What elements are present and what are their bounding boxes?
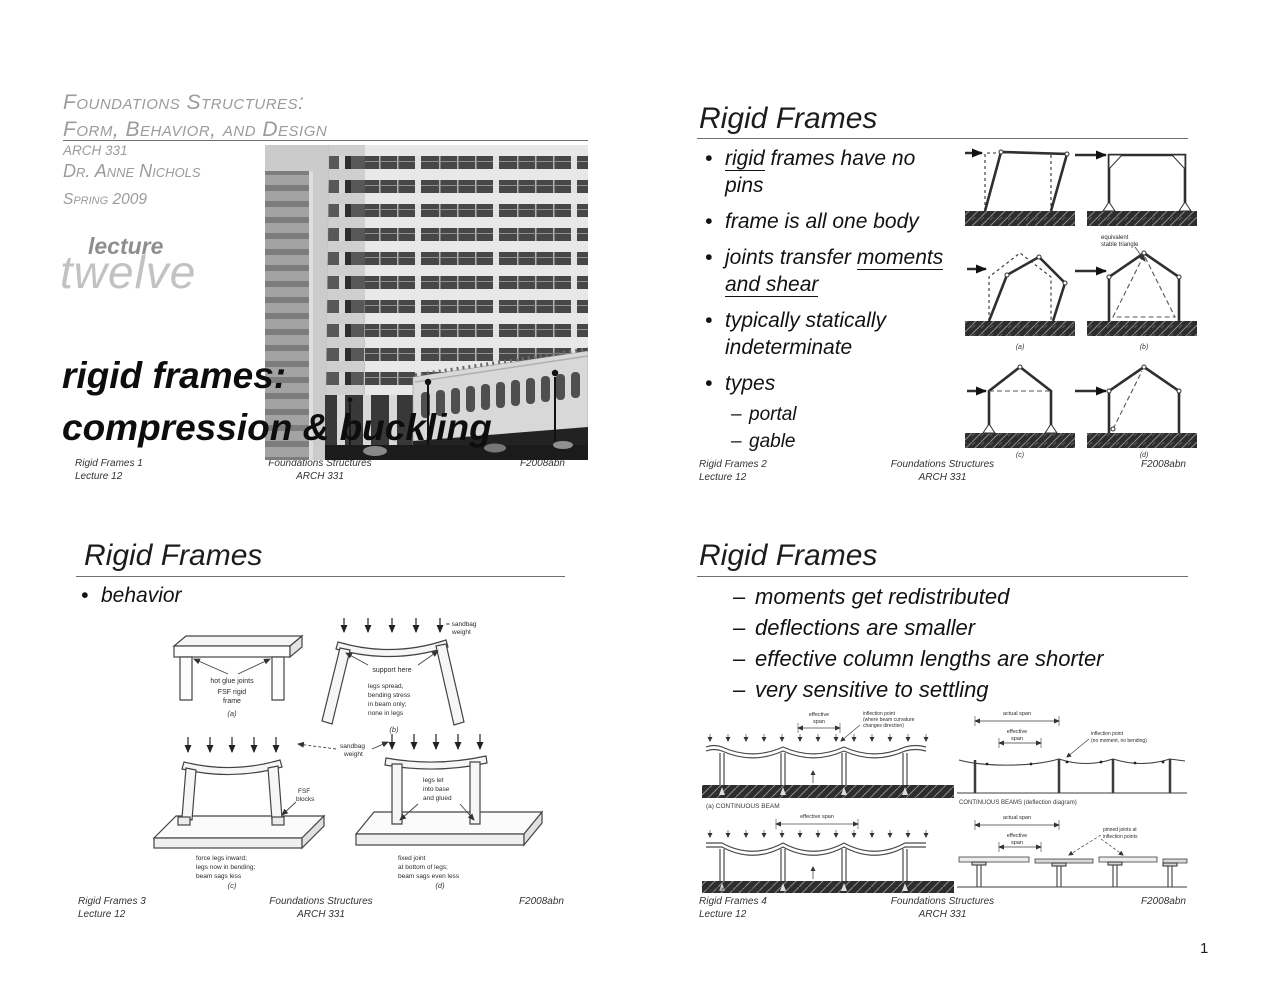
caption-line: beam sags less	[196, 873, 242, 880]
sandbag-label-line2: weight	[343, 751, 363, 758]
effective-span-label2: span	[1011, 840, 1023, 846]
slide-title: Rigid Frames	[699, 102, 877, 136]
diagram-label-b: (b)	[1140, 344, 1149, 351]
dash-bullet-item: – deflections are smaller	[733, 612, 1104, 643]
dash-marker: –	[731, 428, 749, 455]
continuous-beam-caption: (a) CONTINUOUS BEAM	[706, 803, 780, 810]
bullet-marker: •	[705, 244, 725, 298]
course-title: Foundations Structures: Form, Behavior, …	[63, 89, 327, 143]
footer-right: F2008abn	[435, 457, 565, 483]
footer-left: Rigid Frames 1 Lecture 12	[75, 457, 205, 483]
slide-1-title-slide: Foundations Structures: Form, Behavior, …	[60, 85, 590, 485]
continuous-beams-deflection-sketch	[957, 716, 1187, 793]
note-line: legs spread,	[368, 683, 404, 690]
sub-bullet-text: gable	[749, 428, 796, 455]
lecture-title-line1: rigid frames:	[62, 355, 286, 397]
portal-frame-rigid-sketch	[1075, 155, 1197, 226]
inflection-note-line: (no moment, no bending)	[1091, 738, 1147, 744]
effective-span-label: effective span	[800, 814, 834, 820]
footer-center: Foundations Structures ARCH 331	[829, 458, 1056, 484]
inflection-note-line: inflection point	[1091, 731, 1124, 737]
bullet-item: • typically statically indeterminate	[705, 307, 957, 361]
footer-center: Foundations Structures ARCH 331	[208, 895, 434, 921]
beam-frames-diagram: effective span inflection point (where b…	[700, 707, 958, 893]
note-line: in beam only;	[368, 701, 407, 708]
dash-bullet-item: – moments get redistributed	[733, 581, 1104, 612]
bullet-marker: •	[705, 307, 725, 361]
actual-span-label: actual span	[1003, 815, 1031, 821]
footer-right: F2008abn	[1056, 895, 1186, 921]
frame-types-diagram: equivalent stable triangle (a) (b)	[963, 145, 1200, 459]
bullet-item: • joints transfer moments and shear	[705, 244, 957, 298]
bullet-text: frame is all one body	[725, 208, 919, 235]
dash-marker: –	[733, 612, 755, 643]
term: Spring 2009	[63, 191, 147, 209]
simple-beam-frame-sketch	[702, 819, 954, 893]
deflection-gerber-diagram: actual span effective span inflection po…	[955, 707, 1189, 893]
footer-right: F2008abn	[434, 895, 564, 921]
bullet-marker: •	[705, 208, 725, 235]
dash-marker: –	[731, 401, 749, 428]
footer-center: Foundations Structures ARCH 331	[829, 895, 1056, 921]
bullet-text: behavior	[101, 584, 182, 608]
bullet-text: types	[725, 370, 775, 397]
frame-name-line2: frame	[223, 698, 241, 705]
dash-bullet-text: very sensitive to settling	[755, 674, 989, 705]
caption-line: force legs inward;	[196, 855, 247, 862]
support-here-note: support here	[372, 667, 411, 674]
slide-footer: Rigid Frames 2 Lecture 12 Foundations St…	[699, 458, 1186, 484]
bullet-marker: •	[705, 145, 725, 199]
sub-bullet-item: – gable	[731, 428, 957, 455]
effective-span-label: effective	[1007, 833, 1027, 839]
glued-note-line2: into base	[423, 786, 450, 793]
effective-span-label: effective	[1007, 729, 1027, 735]
diagram-label-a: (a)	[1016, 344, 1025, 351]
hot-glue-note: hot glue joints	[210, 678, 254, 685]
bullet-text: typically statically indeterminate	[725, 307, 957, 361]
title-underline	[697, 138, 1188, 139]
bullet-item: • types	[705, 370, 957, 397]
bullet-list: • rigid frames have no pins • frame is a…	[705, 145, 957, 455]
bullet-item: • frame is all one body	[705, 208, 957, 235]
sketch-label-a: (a)	[227, 709, 237, 718]
handout-page: Foundations Structures: Form, Behavior, …	[0, 0, 1280, 989]
blocks-label-line1: FSF	[298, 788, 310, 795]
sketch-label-d: (d)	[435, 881, 445, 890]
bullet-item: • behavior	[81, 584, 182, 608]
effective-span-label2: span	[813, 719, 825, 725]
course-code: ARCH 331	[63, 143, 128, 158]
slide-title: Rigid Frames	[84, 539, 262, 573]
slide-footer: Rigid Frames 3 Lecture 12 Foundations St…	[78, 895, 564, 921]
simple-beam-caption: (b) SIMPLE BEAM	[706, 887, 760, 893]
title-underline	[697, 576, 1188, 577]
triangle-note-line2: stable triangle	[1101, 242, 1139, 248]
blocks-label-line2: blocks	[296, 796, 315, 803]
dash-bullet-text: deflections are smaller	[755, 612, 975, 643]
glued-note-line3: and glued	[423, 795, 452, 802]
gerber-beams-sketch	[957, 820, 1187, 887]
caption-line: at bottom of legs;	[398, 864, 448, 871]
glued-note-line1: legs let	[423, 777, 444, 784]
gable-frame-stable-sketch	[1075, 247, 1197, 336]
dash-bullet-text: effective column lengths are shorter	[755, 643, 1104, 674]
note-line: none in legs	[368, 710, 404, 717]
effective-span-label2: span	[1011, 736, 1023, 742]
title-underline	[63, 140, 588, 141]
dash-marker: –	[733, 674, 755, 705]
pinned-joints-note-line: inflection points	[1103, 834, 1138, 840]
sandbag-label-line1: sandbag	[340, 743, 365, 750]
bullet-marker: •	[81, 584, 101, 608]
slide-footer: Rigid Frames 4 Lecture 12 Foundations St…	[699, 895, 1186, 921]
continuous-beams-caption: CONTINUOUS BEAMS (deflection diagram)	[959, 800, 1077, 806]
page-number: 1	[1200, 940, 1208, 957]
triangle-note-line1: equivalent	[1101, 235, 1129, 241]
lecture-number: twelve	[60, 245, 196, 299]
slide-footer: Rigid Frames 1 Lecture 12 Foundations St…	[75, 457, 565, 483]
bullet-text: rigid frames have no pins	[725, 145, 957, 199]
gable-frame-tied-sketch	[965, 365, 1075, 448]
frame-name-line1: FSF rigid	[218, 689, 247, 696]
bullet-marker: •	[705, 370, 725, 397]
slide-4-moments: Rigid Frames – moments get redistributed…	[697, 535, 1192, 925]
instructor-name: Dr. Anne Nichols	[63, 161, 201, 182]
lecture-title-line2: compression & buckling	[62, 407, 492, 449]
bullet-text: joints transfer moments and shear	[725, 244, 957, 298]
sub-bullet-item: – portal	[731, 401, 957, 428]
sandbag-weight-line1: = sandbag	[446, 621, 477, 628]
dash-bullet-item: – effective column lengths are shorter	[733, 643, 1104, 674]
pinned-joints-note-line: pinned joints at	[1103, 827, 1137, 833]
course-title-line1: Foundations Structures:	[63, 89, 327, 116]
caption-line: beam sags even less	[398, 873, 460, 880]
footer-right: F2008abn	[1056, 458, 1186, 484]
inflection-note-line: changes direction)	[863, 723, 904, 729]
bullet-item: • rigid frames have no pins	[705, 145, 957, 199]
gable-frame-diagonal-sketch	[1075, 365, 1197, 448]
sketch-label-b: (b)	[389, 725, 399, 734]
sub-bullet-text: portal	[749, 401, 797, 428]
slide-title: Rigid Frames	[699, 539, 877, 573]
portal-frame-unbraced-sketch	[965, 150, 1075, 226]
continuous-beam-frame-sketch	[702, 723, 954, 798]
effective-span-label: effective	[809, 712, 829, 718]
actual-span-label: actual span	[1003, 711, 1031, 717]
sandbag-weight-line2: weight	[451, 629, 471, 636]
caption-line: fixed joint	[398, 855, 426, 862]
dash-marker: –	[733, 581, 755, 612]
behavior-diagram: hot glue joints FSF rigid frame (a) = sa…	[140, 612, 560, 890]
dash-marker: –	[733, 643, 755, 674]
footer-left: Rigid Frames 4 Lecture 12	[699, 895, 829, 921]
dash-bullet-text: moments get redistributed	[755, 581, 1009, 612]
slide-2-rigid-frames: Rigid Frames • rigid frames have no pins…	[697, 100, 1202, 490]
title-underline	[76, 576, 565, 577]
footer-left: Rigid Frames 2 Lecture 12	[699, 458, 829, 484]
gable-frame-collapsing-sketch	[965, 253, 1075, 336]
note-line: bending stress	[368, 692, 411, 699]
footer-center: Foundations Structures ARCH 331	[205, 457, 435, 483]
course-title-line2: Form, Behavior, and Design	[63, 116, 327, 143]
dash-bullet-item: – very sensitive to settling	[733, 674, 1104, 705]
sketch-label-c: (c)	[228, 881, 237, 890]
dash-bullet-list: – moments get redistributed – deflection…	[733, 581, 1104, 705]
slide-3-behavior: Rigid Frames • behavior	[75, 535, 565, 925]
caption-line: legs now in bending;	[196, 864, 255, 871]
footer-left: Rigid Frames 3 Lecture 12	[78, 895, 208, 921]
